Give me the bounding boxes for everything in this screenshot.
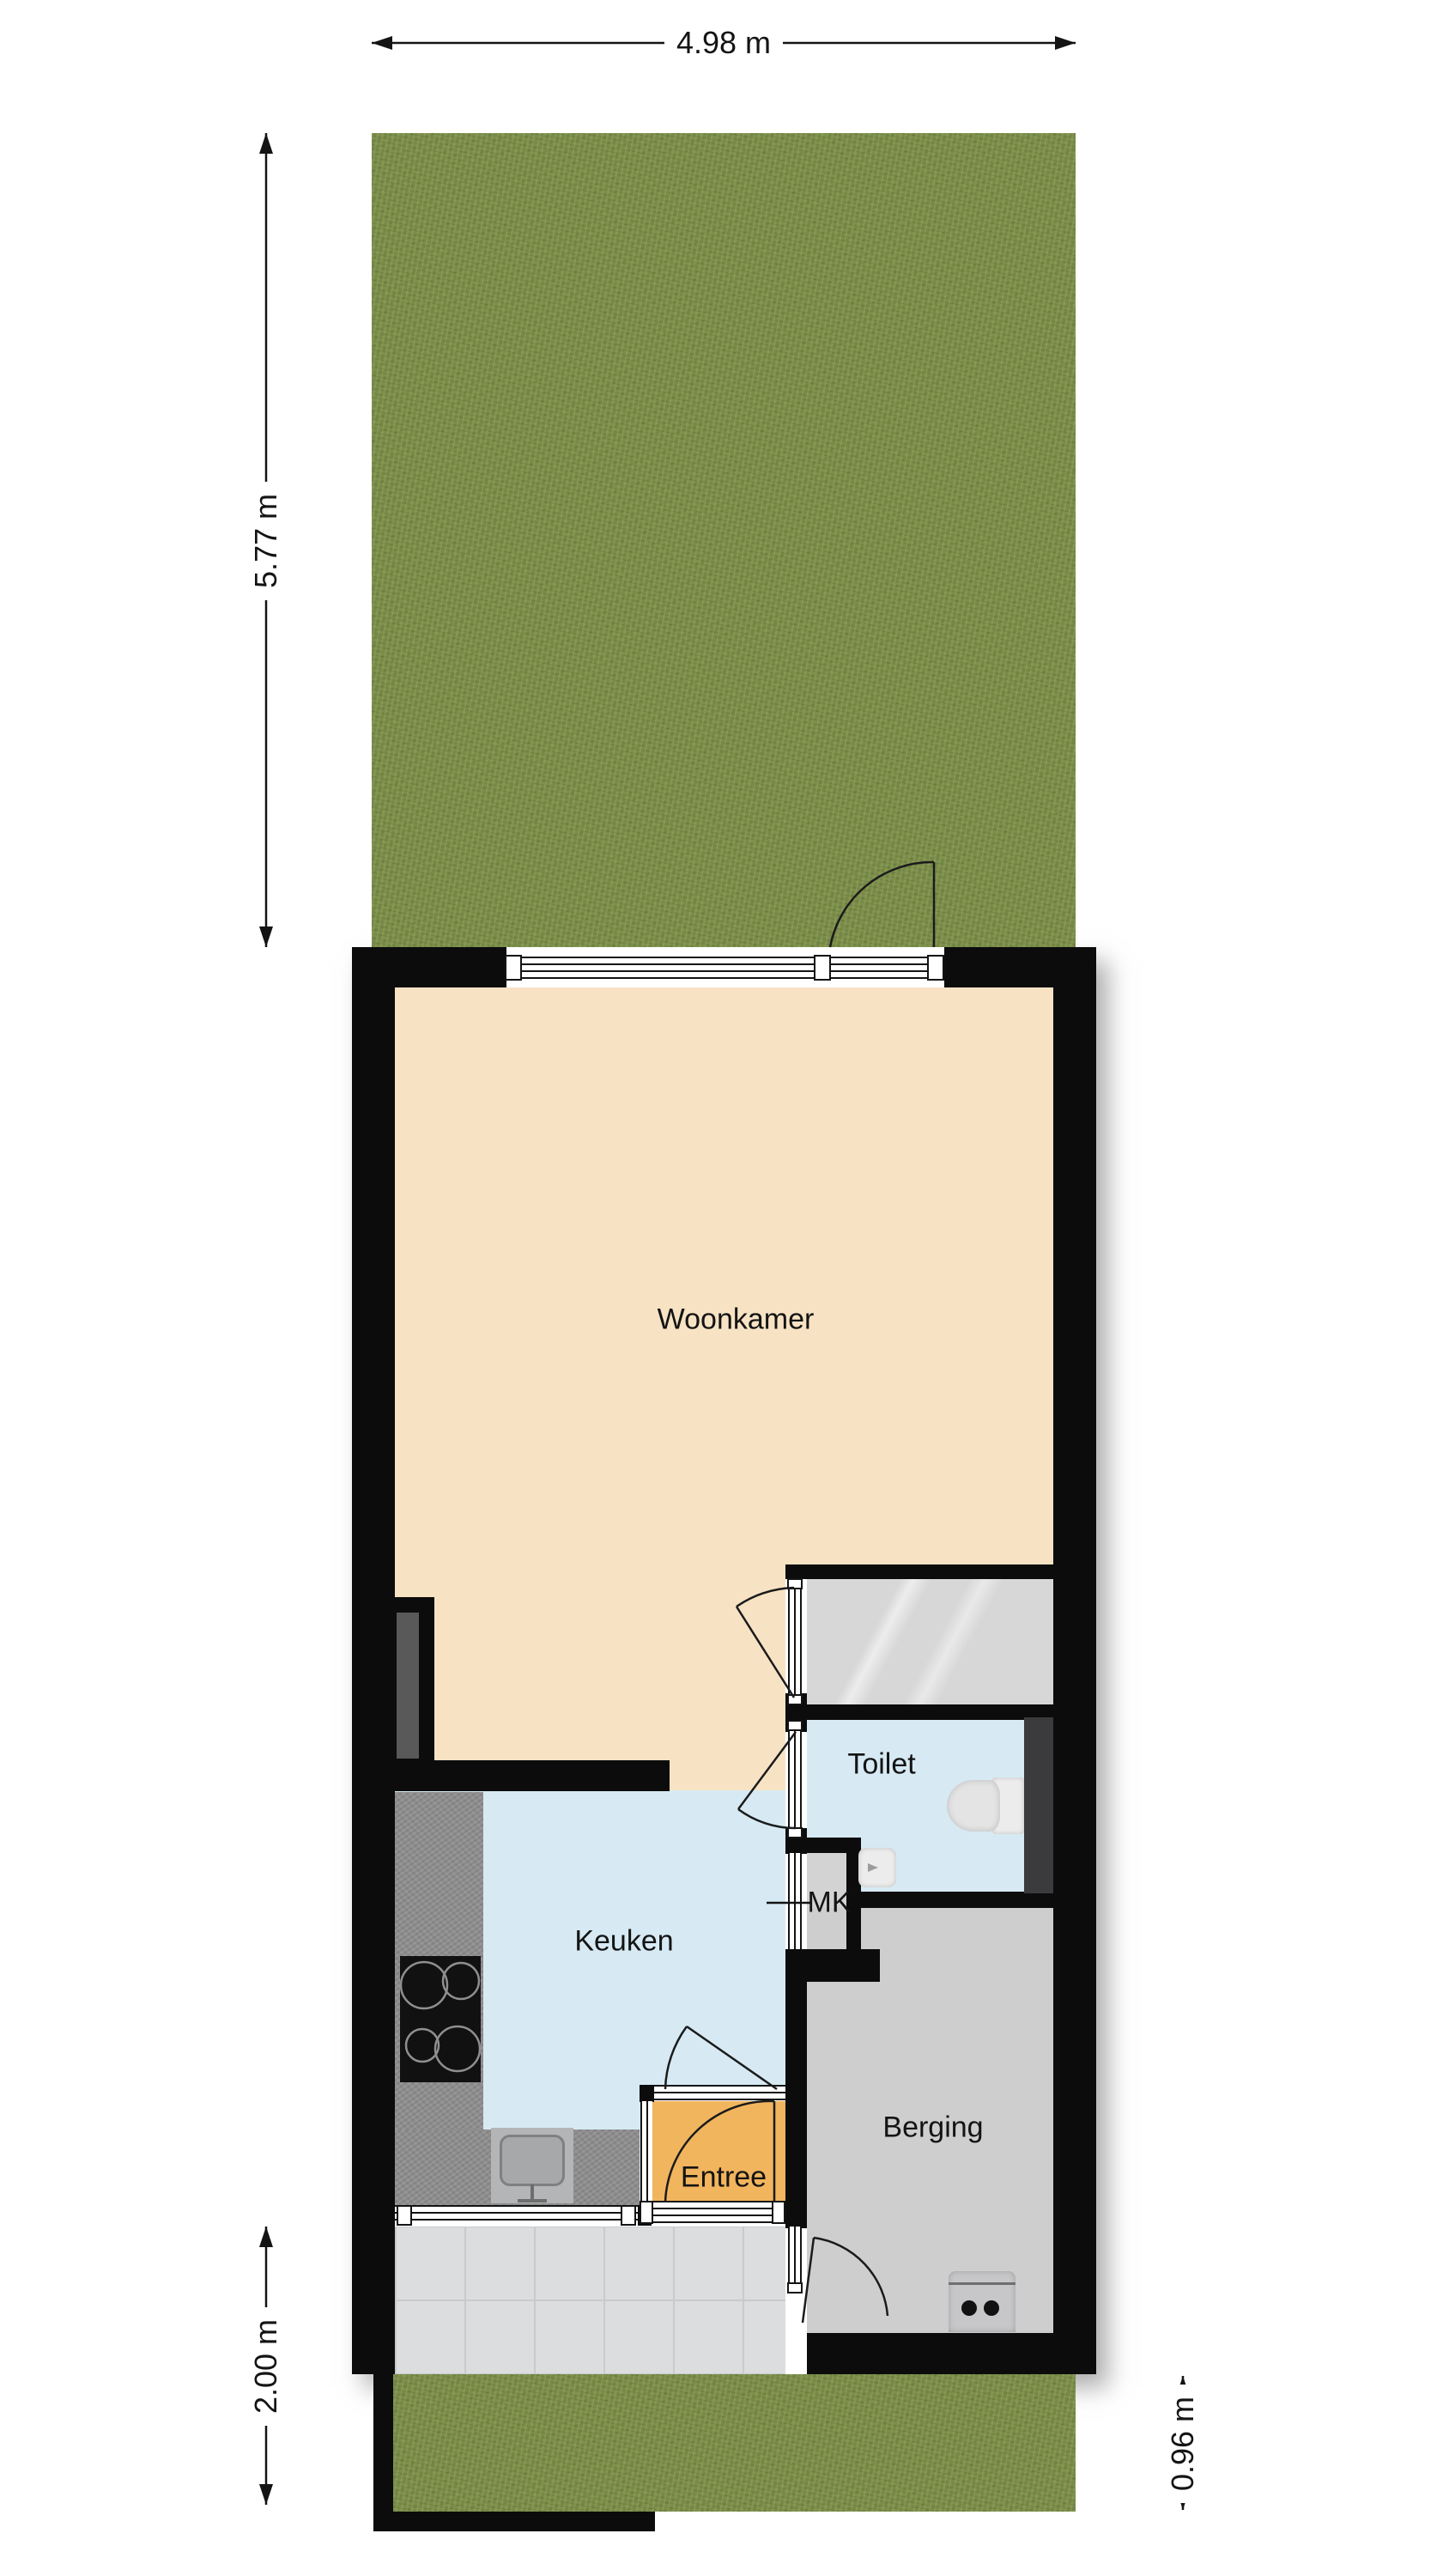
toilet-bowl: [947, 1780, 1000, 1832]
label-toilet: Toilet: [847, 1748, 915, 1782]
wall-stairwell-bottom: [785, 1704, 1053, 1720]
label-kitchen: Keuken: [574, 1925, 673, 1959]
front-door-band: [640, 2201, 785, 2224]
front-garden: [393, 2374, 1076, 2512]
wall-stairwell-top: [785, 1564, 1053, 1579]
stairwell-door: [788, 1584, 802, 1696]
storage-door: [788, 2227, 802, 2284]
living-room-floor: [395, 987, 1053, 1564]
window-mullion: [621, 2205, 636, 2226]
window-mullion: [814, 955, 831, 981]
arrowhead: [259, 2484, 273, 2505]
wall-bottom-storage: [807, 2333, 1096, 2374]
garden-facade-window: [506, 957, 944, 979]
washer-connection: [949, 2271, 1016, 2332]
porch-tiles: [395, 2226, 785, 2374]
hand-basin: [858, 1848, 896, 1887]
door-jamb: [787, 1827, 803, 1838]
washer-top-line: [949, 2282, 1016, 2285]
shaft: [1024, 1717, 1053, 1893]
door-jamb: [787, 1720, 803, 1731]
meter-closet-door: [788, 1853, 802, 1949]
door-jamb: [787, 2282, 803, 2293]
back-garden: [372, 133, 1076, 947]
wall-right-outer: [1053, 947, 1096, 2374]
garden-wall-bottom: [373, 2512, 655, 2531]
entry-left-glazing: [640, 2101, 652, 2202]
window-mullion: [505, 955, 522, 981]
kitchen-sink: [500, 2135, 565, 2186]
door-jamb: [787, 1694, 803, 1705]
wall-mk-bottom: [787, 1949, 880, 1982]
label-living-room: Woonkamer: [658, 1303, 815, 1337]
stairwell-floor: [807, 1579, 1053, 1704]
washer-dot: [984, 2300, 999, 2316]
arrowhead: [259, 2227, 273, 2247]
label-storage: Berging: [882, 2111, 983, 2145]
label-entry: Entree: [681, 2161, 767, 2195]
arrowhead: [1055, 36, 1076, 50]
wall-entry-storage: [785, 1949, 807, 2228]
living-room-floor: [395, 1564, 785, 1790]
kitchen-window: [395, 2205, 638, 2226]
door-jamb: [640, 2201, 653, 2224]
chimney-flue: [397, 1613, 419, 1759]
dim-label-bottom-right: 0.96 m: [1163, 2385, 1203, 2503]
dim-label-bottom-left: 2.00 m: [246, 2307, 286, 2426]
floor-plan: Woonkamer Keuken Toilet MK Entree Bergin…: [0, 0, 1449, 2576]
window-mullion: [927, 955, 944, 981]
washer-dot: [961, 2300, 977, 2316]
entry-top-glazing: [654, 2085, 785, 2101]
door-jamb: [787, 1578, 803, 1589]
garden-wall-left: [373, 2372, 393, 2531]
wall-entry-post: [640, 2085, 654, 2102]
toilet-door: [788, 1730, 802, 1828]
dim-label-top: 4.98 m: [664, 23, 783, 63]
window-mullion: [397, 2205, 412, 2226]
wall-toilet-bottom: [858, 1892, 1053, 1908]
arrowhead: [259, 927, 273, 947]
label-meter-closet: MK: [808, 1886, 852, 1920]
arrowhead: [372, 36, 392, 50]
wall-kitchen-living: [395, 1760, 670, 1791]
wall-top-left: [352, 947, 506, 987]
arrowhead: [259, 133, 273, 154]
wall-left-outer: [352, 947, 395, 2374]
door-jamb: [772, 2201, 785, 2224]
stove: [400, 1956, 481, 2082]
dim-label-left: 5.77 m: [246, 482, 286, 600]
